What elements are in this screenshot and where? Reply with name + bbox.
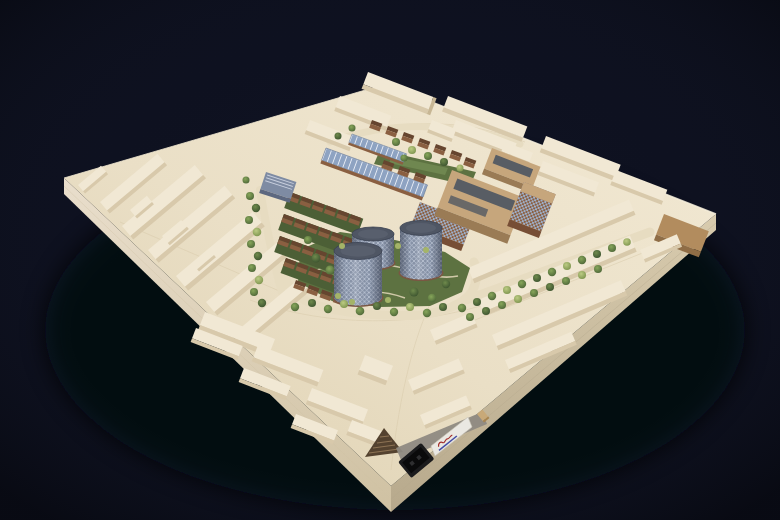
tree: [593, 250, 601, 258]
tree: [578, 271, 586, 279]
tree: [503, 286, 511, 294]
tree: [533, 274, 541, 282]
tree: [439, 303, 447, 311]
tree: [514, 295, 522, 303]
tree: [255, 276, 263, 284]
tree: [594, 265, 602, 273]
tree: [304, 236, 312, 244]
tree: [548, 268, 556, 276]
tree: [406, 303, 414, 311]
tree: [373, 302, 381, 310]
shrub: [395, 243, 401, 249]
tree: [428, 294, 436, 302]
tree: [390, 308, 398, 316]
tree: [424, 152, 432, 160]
tree: [253, 228, 262, 237]
tree: [340, 300, 348, 308]
tree: [410, 288, 419, 297]
tree: [442, 280, 450, 288]
tree: [349, 125, 356, 132]
tree: [400, 154, 407, 161]
tree: [308, 299, 316, 307]
shrub: [349, 299, 355, 305]
tree: [518, 280, 526, 288]
tree: [392, 138, 400, 146]
tree: [245, 216, 253, 224]
tree: [498, 301, 506, 309]
tree: [246, 192, 254, 200]
tree: [312, 254, 321, 263]
tree: [563, 262, 571, 270]
shrub: [385, 297, 391, 303]
tree: [324, 305, 332, 313]
tree: [623, 238, 631, 246]
tree: [326, 266, 335, 275]
tree: [440, 158, 448, 166]
tree: [250, 288, 258, 296]
tree: [482, 307, 490, 315]
tree: [258, 299, 266, 307]
tree: [608, 244, 616, 252]
tree: [408, 146, 416, 154]
tree: [473, 298, 481, 306]
tree: [254, 252, 262, 260]
gasholder-tower-right: [399, 221, 444, 282]
tree: [466, 313, 474, 321]
tree: [423, 309, 431, 317]
tree: [578, 256, 586, 264]
tree: [546, 283, 554, 291]
tree: [356, 307, 365, 316]
tree: [243, 177, 250, 184]
tree: [247, 240, 255, 248]
tree: [248, 264, 256, 272]
tree: [457, 165, 464, 172]
tree: [488, 292, 496, 300]
tree: [252, 204, 260, 212]
shrub: [335, 293, 341, 299]
shrub: [423, 247, 429, 253]
tree: [458, 304, 466, 312]
shrub: [339, 243, 345, 249]
tree: [335, 133, 342, 140]
tree: [562, 277, 570, 285]
tree: [530, 289, 538, 297]
tree: [291, 303, 299, 311]
model-photo: [0, 0, 780, 520]
